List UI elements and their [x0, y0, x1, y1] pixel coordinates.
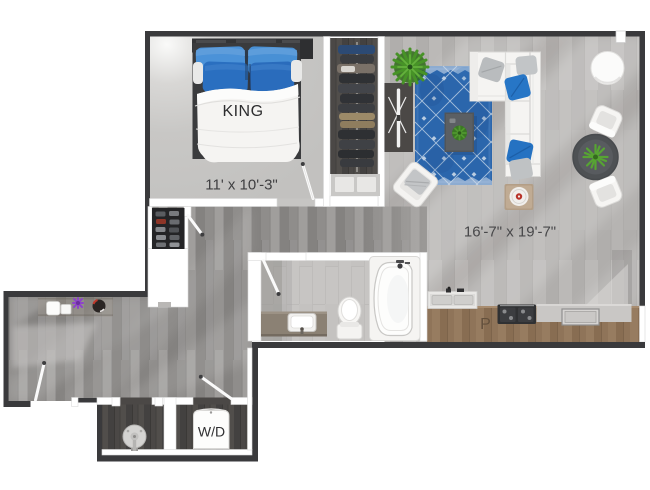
svg-text:KING: KING [222, 103, 263, 120]
svg-text:P: P [480, 316, 491, 333]
svg-text:11' x 10'-3": 11' x 10'-3" [205, 177, 277, 194]
svg-text:W/D: W/D [198, 424, 225, 440]
svg-text:16'-7" x 19'-7": 16'-7" x 19'-7" [464, 224, 556, 241]
